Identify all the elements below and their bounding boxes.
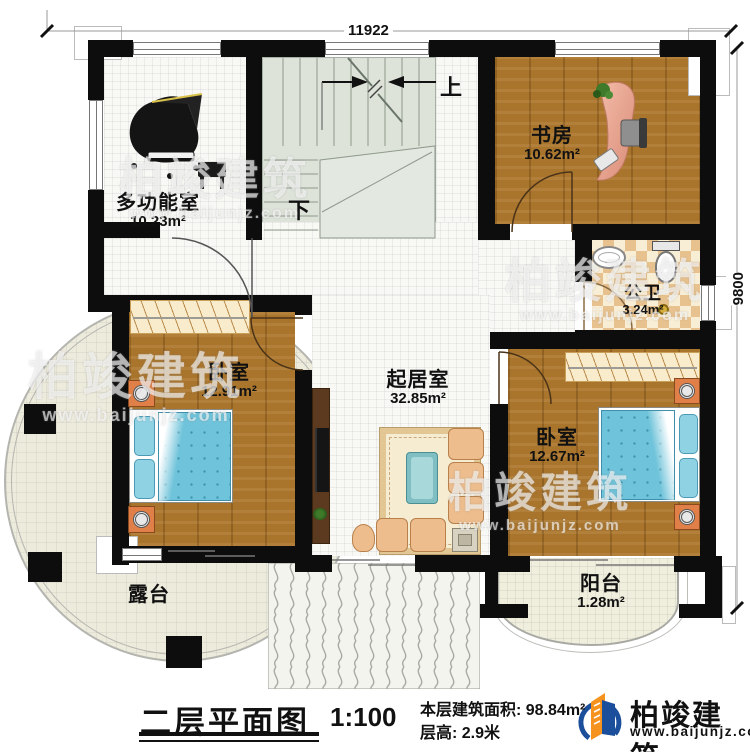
room-label-terrace: 露台	[89, 585, 209, 606]
side-table	[452, 528, 478, 552]
wall	[700, 40, 716, 285]
nightstand	[128, 506, 155, 533]
wall	[295, 295, 312, 315]
window	[122, 548, 162, 561]
stairs-up-label: 上	[440, 70, 462, 102]
wall	[415, 555, 490, 572]
window	[325, 42, 429, 55]
sofa-seat	[376, 518, 408, 552]
terrace-pillar	[166, 636, 202, 668]
coffee-table	[406, 452, 438, 504]
sofa-seat	[448, 428, 484, 460]
wall	[700, 321, 716, 572]
pillow	[679, 458, 698, 498]
wall	[478, 224, 510, 240]
wall	[705, 556, 722, 618]
hall-floor	[104, 222, 478, 295]
title-underline-thin	[139, 740, 319, 742]
bed-duvet	[158, 412, 231, 501]
wall	[221, 40, 325, 57]
floor-area-text: 本层建筑面积: 98.84m²	[420, 696, 585, 720]
room-label-bedroom-left: 卧室 12.91m²	[169, 363, 289, 400]
plan-scale: 1:100	[330, 702, 397, 733]
floor-plan-page: 多功能室 10.23m² 书房 10.62m² 公卫 3.24m² 卧室 12.…	[0, 0, 750, 752]
toilet-icon	[652, 241, 680, 251]
terrace-pillar	[24, 404, 56, 434]
wall	[295, 370, 312, 572]
wall	[312, 555, 332, 572]
logo-company-name: 柏竣建筑	[630, 692, 750, 752]
pillow	[134, 416, 155, 456]
nightstand	[128, 380, 155, 407]
window	[555, 42, 660, 55]
pillow	[134, 459, 155, 499]
toilet-bowl	[655, 251, 677, 283]
bed	[129, 409, 233, 503]
wardrobe	[130, 300, 250, 334]
grand-piano-icon	[118, 88, 240, 200]
nightstand	[674, 378, 700, 404]
pillow	[679, 414, 698, 454]
terrace-pillar	[28, 552, 62, 582]
floor-height-text: 层高: 2.9米	[420, 719, 500, 743]
sink-icon	[592, 246, 626, 269]
wall	[429, 40, 555, 57]
window	[133, 42, 221, 55]
wall	[490, 332, 716, 349]
title-underline-thick	[139, 732, 319, 736]
hall-floor-bath	[478, 240, 575, 332]
dimension-right: 9800	[726, 272, 750, 305]
room-label-multi: 多功能室 10.23m²	[98, 193, 218, 230]
wall	[112, 295, 129, 565]
roof-tile-hatch	[268, 563, 480, 689]
wall	[575, 240, 592, 282]
nightstand	[674, 504, 700, 530]
wall	[88, 40, 104, 100]
room-label-bath: 公卫 3.24m²	[593, 284, 693, 317]
window	[89, 100, 103, 190]
sofa-seat	[448, 462, 484, 494]
room-label-balcony: 阳台 1.28m²	[541, 574, 661, 611]
window-sill-balcony	[722, 566, 736, 624]
wall	[490, 332, 508, 349]
dimension-top: 11922	[344, 22, 393, 39]
tv-icon	[315, 428, 329, 492]
plant-icon	[313, 508, 327, 520]
wall	[246, 57, 262, 240]
wall	[480, 604, 528, 618]
room-label-study: 书房 10.62m²	[492, 126, 612, 163]
wall	[572, 224, 716, 240]
logo-website: www.baijunjz.com	[630, 724, 750, 739]
sofa-seat	[410, 518, 446, 552]
sofa-seat	[448, 496, 484, 524]
window	[701, 285, 715, 321]
armchair	[352, 524, 375, 552]
room-label-bedroom-right: 卧室 12.67m²	[497, 428, 617, 465]
room-label-living: 起居室 32.85m²	[358, 370, 478, 407]
stairs-down-label: 下	[288, 193, 310, 225]
